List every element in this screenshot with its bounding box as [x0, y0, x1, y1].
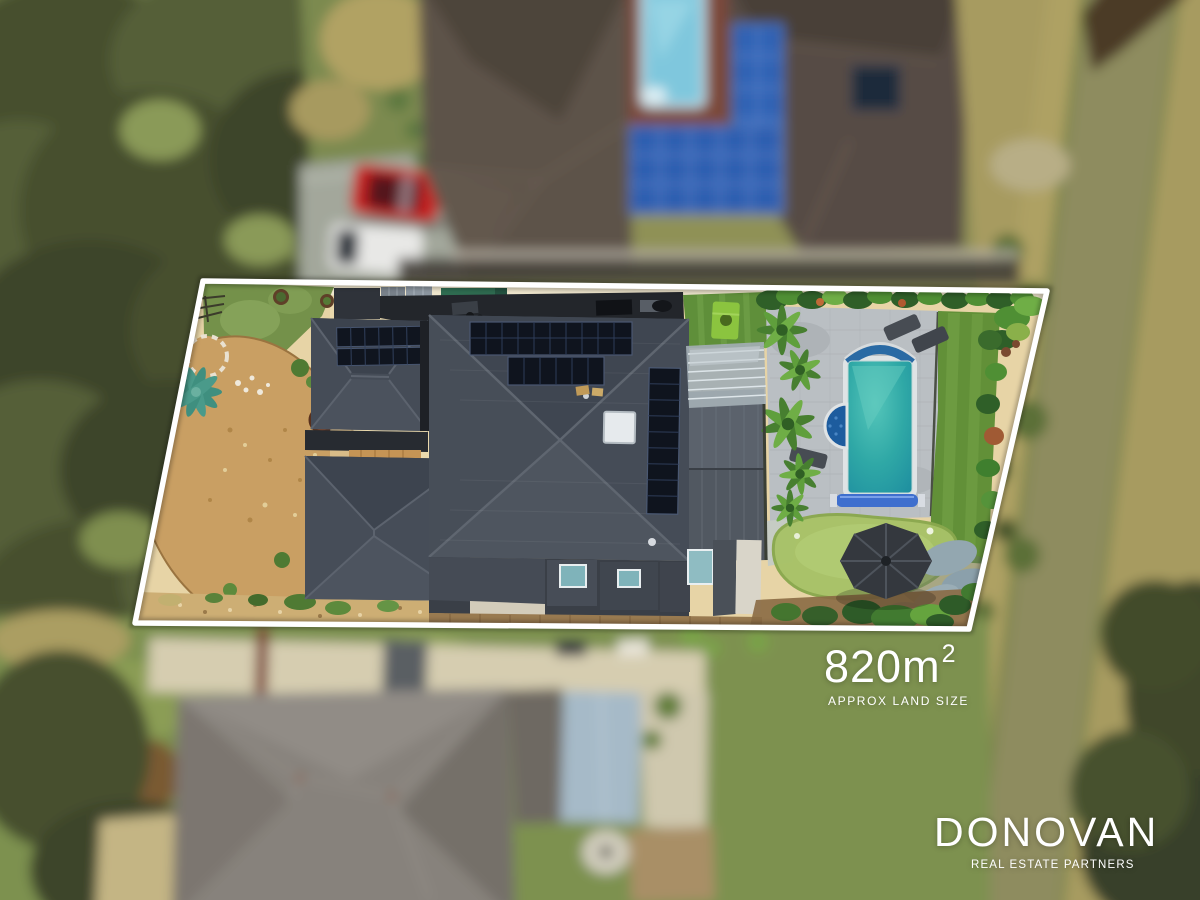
property-interior — [104, 281, 1047, 655]
red-fence — [255, 626, 269, 694]
garage-roof — [311, 318, 428, 431]
dark-shed — [334, 288, 380, 319]
putting-hole — [794, 533, 800, 539]
agency-tagline: REAL ESTATE PARTNERS — [971, 859, 1159, 871]
putting-hole — [927, 528, 934, 535]
main-roof — [429, 315, 689, 561]
agency-logo: DONOVAN REAL ESTATE PARTNERS — [934, 812, 1159, 871]
right-wing — [686, 342, 768, 561]
bbq — [596, 299, 633, 315]
skylight — [604, 412, 636, 444]
window — [560, 565, 586, 587]
aerial-property-photo: 820m2 APPROX LAND SIZE DONOVAN REAL ESTA… — [0, 0, 1200, 900]
land-size-exponent: 2 — [942, 640, 957, 668]
window — [618, 570, 640, 587]
land-size-value: 820m2 — [824, 644, 969, 689]
kids-cubby — [711, 301, 740, 339]
window — [688, 550, 713, 584]
land-size-annotation: 820m2 APPROX LAND SIZE — [824, 644, 969, 708]
main-house — [305, 315, 768, 627]
aerial-scene — [0, 0, 1200, 900]
agency-name: DONOVAN — [934, 812, 1159, 853]
garden-shed — [382, 639, 428, 693]
land-size-label: APPROX LAND SIZE — [828, 694, 969, 708]
gutter-line — [452, 250, 1018, 259]
pool-cover-roller — [836, 494, 918, 507]
